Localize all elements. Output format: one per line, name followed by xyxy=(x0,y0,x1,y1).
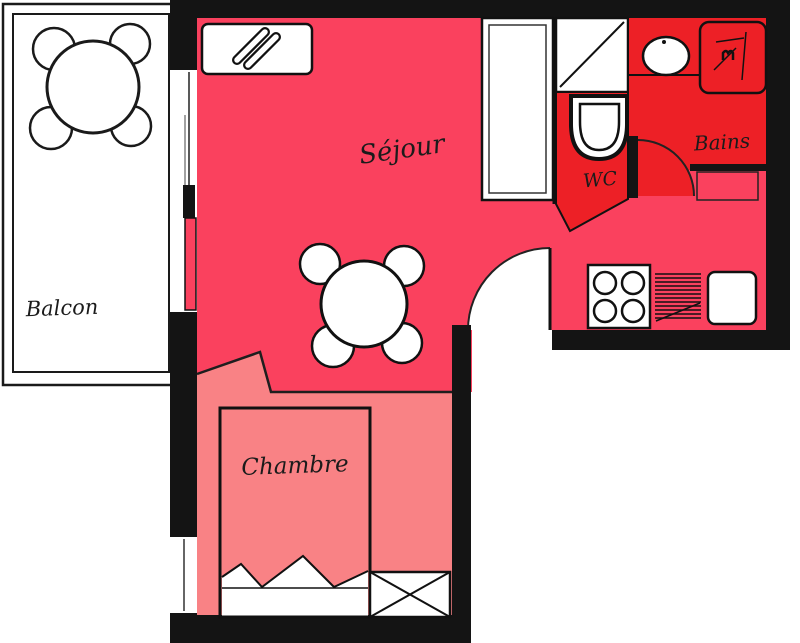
balcony-table-icon xyxy=(47,41,139,133)
washbasin-icon xyxy=(643,37,689,75)
stove-burner-icon xyxy=(594,300,616,322)
wall-top xyxy=(170,0,790,18)
room-wc-label: WC xyxy=(582,168,618,193)
closet-icon xyxy=(482,18,553,200)
wall-kitchen-bottom xyxy=(552,330,790,350)
stove-burner-icon xyxy=(622,272,644,294)
wall-sejour-left-bottom xyxy=(170,312,197,392)
floor-plan-svg: Balcon Séjour Chambre WC Bains xyxy=(0,0,800,643)
room-chambre-label: Chambre xyxy=(241,451,349,481)
dining-table-icon xyxy=(321,261,407,347)
kitchen-sink-icon xyxy=(708,272,756,324)
washbasin-tap-icon xyxy=(662,40,666,44)
toilet-bowl-line xyxy=(580,104,619,150)
wall-right xyxy=(766,0,790,350)
bains-door-jamb-wall xyxy=(629,136,638,198)
window-sejour-frame xyxy=(183,185,195,218)
stove-burner-icon xyxy=(622,300,644,322)
room-balcony-label: Balcon xyxy=(24,295,98,322)
room-bains-label: Bains xyxy=(692,129,750,156)
wall-bains-bottom xyxy=(690,164,766,171)
wall-chambre-right xyxy=(452,325,471,643)
wall-sejour-left-top xyxy=(170,0,197,70)
stove-burner-icon xyxy=(594,272,616,294)
wall-chambre-bottom xyxy=(170,615,471,643)
floor-plan: Balcon Séjour Chambre WC Bains xyxy=(0,0,800,643)
sliding-door-panel xyxy=(185,218,196,310)
